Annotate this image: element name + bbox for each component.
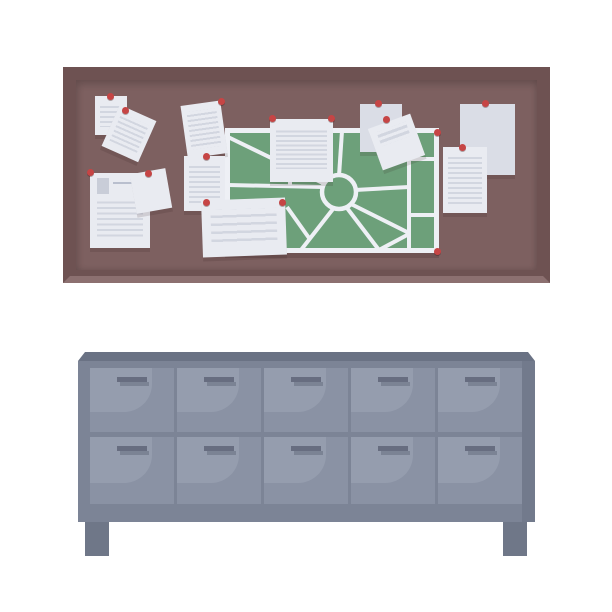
drawer-shading (177, 368, 239, 412)
right-report (443, 147, 487, 213)
tilted-report (181, 100, 228, 158)
push-pin (122, 107, 129, 114)
cabinet-right-foot (503, 522, 527, 556)
cabinet-drawer (177, 368, 261, 432)
drawer-shading (264, 368, 326, 412)
handle-shadow (381, 382, 410, 386)
cabinet-drawer (351, 368, 435, 432)
center-report (270, 119, 333, 182)
push-pin (218, 98, 225, 105)
drawer-handle (291, 377, 321, 382)
push-pin (203, 199, 210, 206)
drawer-handle (465, 377, 495, 382)
cabinet-drawer (264, 437, 348, 504)
handle-shadow (120, 451, 149, 455)
push-pin (328, 115, 335, 122)
cabinet-top-edge (78, 352, 535, 361)
drawer-handle (204, 446, 234, 451)
cabinet-drawer (177, 437, 261, 504)
text-lines (186, 108, 221, 150)
handle-shadow (468, 451, 497, 455)
photo-placeholder (97, 178, 109, 194)
push-pin (459, 144, 466, 151)
text-lines (376, 122, 410, 147)
handle-shadow (294, 451, 323, 455)
cabinet-drawer (264, 368, 348, 432)
drawer-handle (204, 377, 234, 382)
wide-memo (201, 198, 287, 258)
push-pin (269, 115, 276, 122)
cabinet-drawer (90, 368, 174, 432)
drawer-shading (177, 437, 239, 483)
handle-shadow (207, 451, 236, 455)
cabinet-right-edge (522, 361, 535, 522)
handle-shadow (381, 451, 410, 455)
drawer-handle (465, 446, 495, 451)
text-lines (189, 163, 220, 203)
cabinet-drawer (438, 437, 522, 504)
text-lines (276, 128, 327, 169)
drawer-shading (90, 368, 152, 412)
push-pin (145, 170, 152, 177)
drawer-shading (438, 437, 500, 483)
text-lines (109, 113, 149, 153)
push-pin (383, 116, 390, 123)
push-pin (434, 248, 441, 255)
drawer-handle (117, 377, 147, 382)
handle-shadow (207, 382, 236, 386)
text-lines (210, 208, 277, 247)
cabinet-left-foot (85, 522, 109, 556)
cabinet-drawer-grid (90, 368, 522, 508)
illustration-scene (0, 0, 612, 612)
drawer-handle (378, 446, 408, 451)
drawer-shading (90, 437, 152, 483)
drawer-handle (378, 377, 408, 382)
push-pin (434, 129, 441, 136)
push-pin (375, 100, 382, 107)
cabinet-drawer (351, 437, 435, 504)
drawer-handle (117, 446, 147, 451)
drawer-shading (264, 437, 326, 483)
cabinet-drawer (438, 368, 522, 432)
push-pin (107, 93, 114, 100)
text-lines (448, 154, 482, 205)
push-pin (482, 100, 489, 107)
cabinet-drawer (90, 437, 174, 504)
drawer-shading (351, 368, 413, 412)
handle-shadow (120, 382, 149, 386)
drawer-shading (438, 368, 500, 412)
handle-shadow (468, 382, 497, 386)
push-pin (203, 153, 210, 160)
drawer-handle (291, 446, 321, 451)
handle-shadow (294, 382, 323, 386)
push-pin (87, 169, 94, 176)
drawer-shading (351, 437, 413, 483)
push-pin (279, 199, 286, 206)
